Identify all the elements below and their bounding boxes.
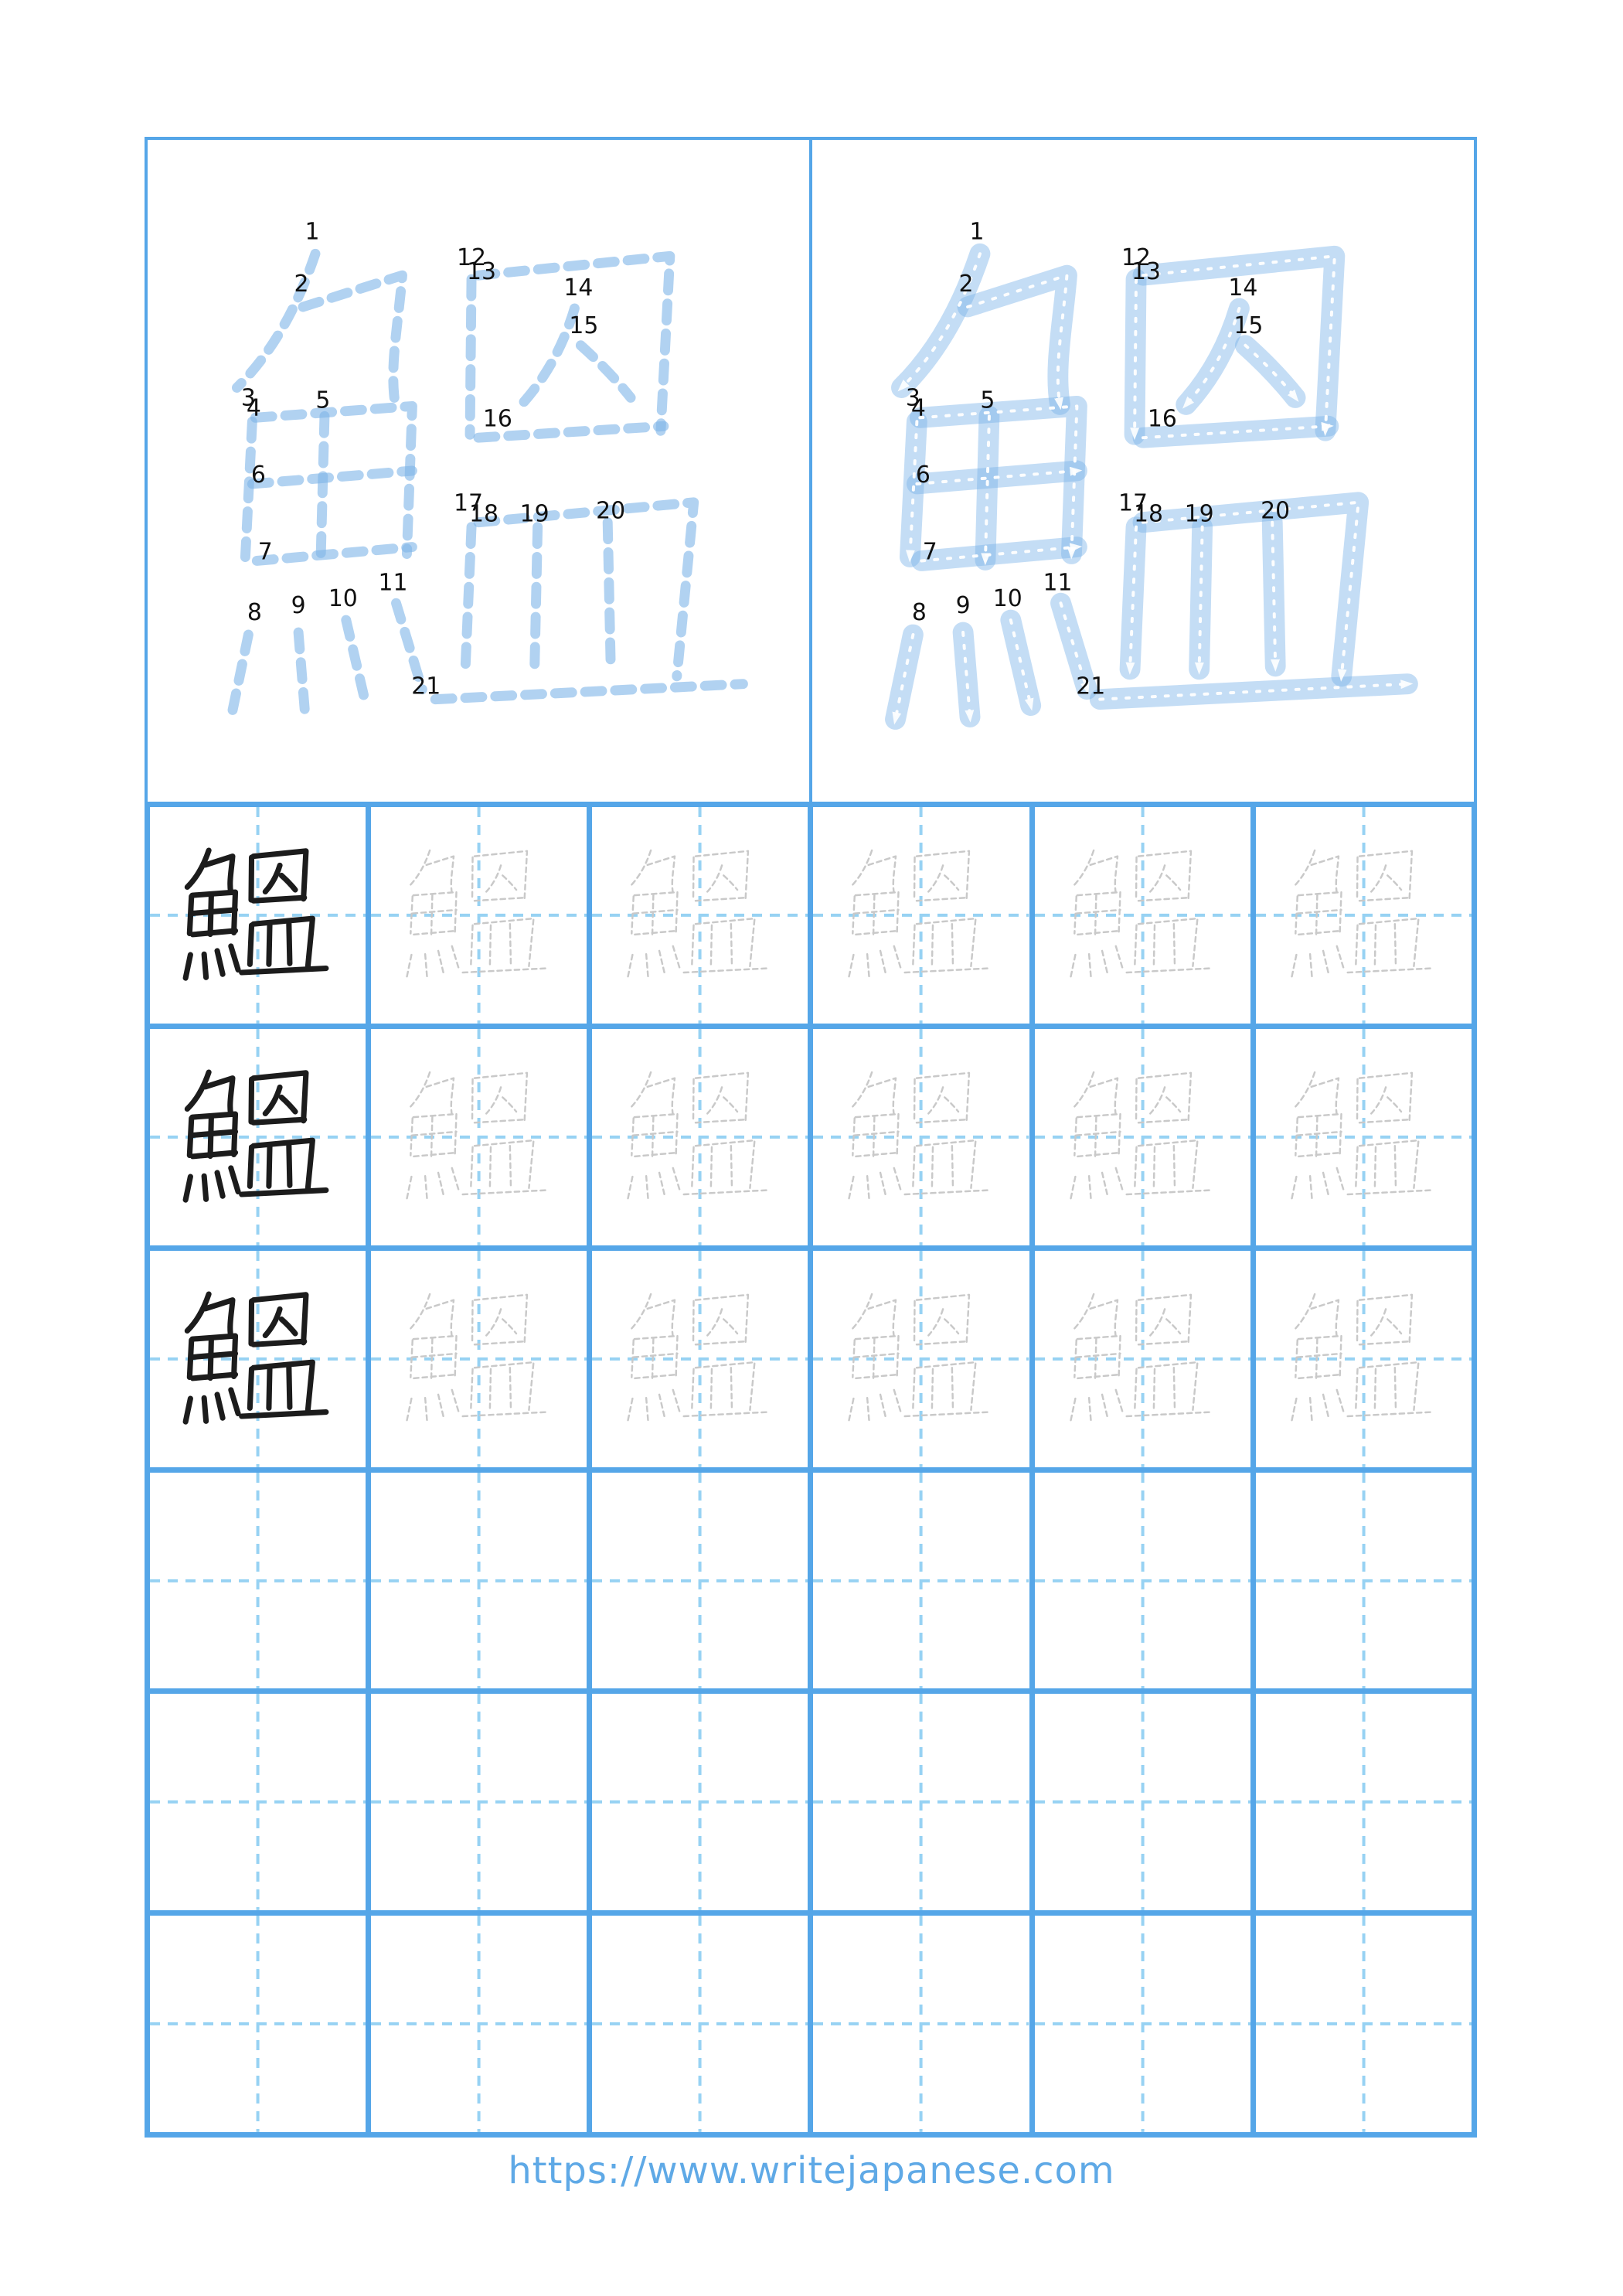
stroke-number: 1: [970, 218, 985, 245]
practice-cell-r4-c1: [150, 1473, 366, 1689]
practice-cell-r6-c5: [1035, 1916, 1250, 2132]
kanji-glyph-dashed-gray: [1035, 1251, 1250, 1467]
cell-guide-lines: [1256, 1916, 1472, 2132]
kanji-glyph-dashed-gray: [371, 1251, 587, 1467]
stroke-number: 13: [1131, 258, 1161, 285]
practice-cell-r3-c6: [1256, 1251, 1472, 1467]
stroke-number: 15: [569, 312, 598, 339]
stroke-number: 19: [520, 501, 550, 528]
practice-cell-r6-c6: [1256, 1916, 1472, 2132]
cell-guide-lines: [592, 1473, 808, 1689]
practice-cell-r4-c6: [1256, 1473, 1472, 1689]
cell-guide-lines: [371, 1916, 587, 2132]
kanji-glyph-dashed-gray: [1035, 1029, 1250, 1245]
stroke-number: 5: [315, 387, 330, 414]
stroke-number: 20: [596, 498, 625, 525]
practice-cell-r1-c5: [1035, 807, 1250, 1024]
stroke-number: 14: [563, 274, 593, 301]
stroke-number: 11: [379, 569, 408, 596]
worksheet-page: 1234567891011121314151617181920211234567…: [0, 0, 1623, 2296]
cell-guide-lines: [813, 1694, 1029, 1910]
kanji-glyph-dashed-gray: [592, 1251, 808, 1467]
practice-cell-r2-c1: [150, 1029, 366, 1245]
stroke-number: 13: [467, 258, 496, 285]
kanji-glyph-dashed-gray: [1256, 807, 1472, 1024]
practice-cell-r1-c2: [371, 807, 587, 1024]
kanji-glyph-dashed-gray: [371, 1029, 587, 1245]
practice-cell-r6-c2: [371, 1916, 587, 2132]
stroke-order-traced-box: 123456789101112131415161718192021: [809, 137, 1477, 805]
kanji-glyph-dashed-gray: [813, 1029, 1029, 1245]
stroke-number: 5: [980, 387, 995, 414]
practice-cell-r2-c4: [813, 1029, 1029, 1245]
practice-cell-r5-c6: [1256, 1694, 1472, 1910]
kanji-glyph-dashed-blue: 123456789101112131415161718192021: [148, 140, 809, 802]
stroke-number: 18: [1134, 501, 1163, 528]
practice-cell-r2-c2: [371, 1029, 587, 1245]
practice-cell-r6-c3: [592, 1916, 808, 2132]
stroke-number: 6: [251, 462, 266, 489]
kanji-glyph-solid-black: [150, 1029, 366, 1245]
kanji-glyph-solid-black: [150, 807, 366, 1024]
cell-guide-lines: [592, 1694, 808, 1910]
stroke-number: 4: [911, 394, 926, 421]
cell-guide-lines: [1035, 1916, 1250, 2132]
stroke-order-panel: 1234567891011121314151617181920211234567…: [145, 137, 1477, 805]
kanji-glyph-dashed-gray: [1035, 807, 1250, 1024]
stroke-number: 11: [1043, 569, 1073, 596]
practice-cell-r3-c3: [592, 1251, 808, 1467]
stroke-number: 1: [305, 218, 320, 245]
site-url[interactable]: https://www.writejapanese.com: [0, 2149, 1623, 2192]
stroke-number: 16: [483, 405, 512, 432]
kanji-glyph-dashed-gray: [1256, 1029, 1472, 1245]
kanji-glyph-dashed-gray: [813, 807, 1029, 1024]
practice-cell-r4-c2: [371, 1473, 587, 1689]
practice-cell-r1-c4: [813, 807, 1029, 1024]
stroke-number: 8: [247, 599, 262, 626]
stroke-number: 14: [1228, 274, 1257, 301]
stroke-number: 9: [956, 592, 971, 619]
practice-cell-r5-c3: [592, 1694, 808, 1910]
kanji-glyph-dashed-gray: [371, 807, 587, 1024]
cell-guide-lines: [592, 1916, 808, 2132]
stroke-number: 21: [1076, 673, 1105, 700]
stroke-number: 2: [294, 271, 309, 298]
stroke-number: 7: [258, 538, 273, 565]
practice-cell-r4-c4: [813, 1473, 1029, 1689]
cell-guide-lines: [1035, 1694, 1250, 1910]
practice-cell-r4-c5: [1035, 1473, 1250, 1689]
stroke-order-dashed-box: 123456789101112131415161718192021: [145, 137, 812, 805]
practice-cell-r2-c5: [1035, 1029, 1250, 1245]
stroke-number: 2: [959, 271, 974, 298]
practice-cell-r1-c1: [150, 807, 366, 1024]
cell-guide-lines: [813, 1916, 1029, 2132]
practice-cell-r3-c5: [1035, 1251, 1250, 1467]
stroke-number: 7: [923, 538, 937, 565]
stroke-number: 8: [912, 599, 927, 626]
practice-cell-r5-c5: [1035, 1694, 1250, 1910]
stroke-number: 16: [1148, 405, 1177, 432]
practice-cell-r6-c4: [813, 1916, 1029, 2132]
kanji-glyph-dashed-gray: [1256, 1251, 1472, 1467]
practice-cell-r2-c3: [592, 1029, 808, 1245]
practice-cell-r5-c1: [150, 1694, 366, 1910]
stroke-number: 18: [469, 501, 498, 528]
practice-cell-r3-c4: [813, 1251, 1029, 1467]
practice-cell-r1-c6: [1256, 807, 1472, 1024]
kanji-glyph-traced-blue: 123456789101112131415161718192021: [812, 140, 1474, 802]
kanji-glyph-dashed-gray: [592, 807, 808, 1024]
cell-guide-lines: [150, 1916, 366, 2132]
stroke-number: 19: [1185, 501, 1214, 528]
stroke-number: 4: [247, 394, 261, 421]
practice-cell-r3-c1: [150, 1251, 366, 1467]
cell-guide-lines: [371, 1694, 587, 1910]
practice-cell-r4-c3: [592, 1473, 808, 1689]
practice-cell-r6-c1: [150, 1916, 366, 2132]
practice-cell-r2-c6: [1256, 1029, 1472, 1245]
stroke-number: 9: [291, 592, 306, 619]
cell-guide-lines: [371, 1473, 587, 1689]
kanji-glyph-solid-black: [150, 1251, 366, 1467]
stroke-number: 6: [916, 462, 931, 489]
kanji-glyph-dashed-gray: [813, 1251, 1029, 1467]
cell-guide-lines: [1256, 1473, 1472, 1689]
kanji-glyph-dashed-gray: [592, 1029, 808, 1245]
stroke-number: 10: [328, 585, 358, 612]
stroke-number: 21: [411, 673, 441, 700]
cell-guide-lines: [150, 1473, 366, 1689]
practice-cell-r1-c3: [592, 807, 808, 1024]
stroke-number: 10: [993, 585, 1022, 612]
cell-guide-lines: [813, 1473, 1029, 1689]
cell-guide-lines: [1035, 1473, 1250, 1689]
practice-cell-r5-c2: [371, 1694, 587, 1910]
stroke-number: 15: [1233, 312, 1263, 339]
practice-cell-r5-c4: [813, 1694, 1029, 1910]
stroke-number: 20: [1261, 498, 1290, 525]
practice-grid: [145, 802, 1477, 2138]
practice-cell-r3-c2: [371, 1251, 587, 1467]
cell-guide-lines: [150, 1694, 366, 1910]
cell-guide-lines: [1256, 1694, 1472, 1910]
